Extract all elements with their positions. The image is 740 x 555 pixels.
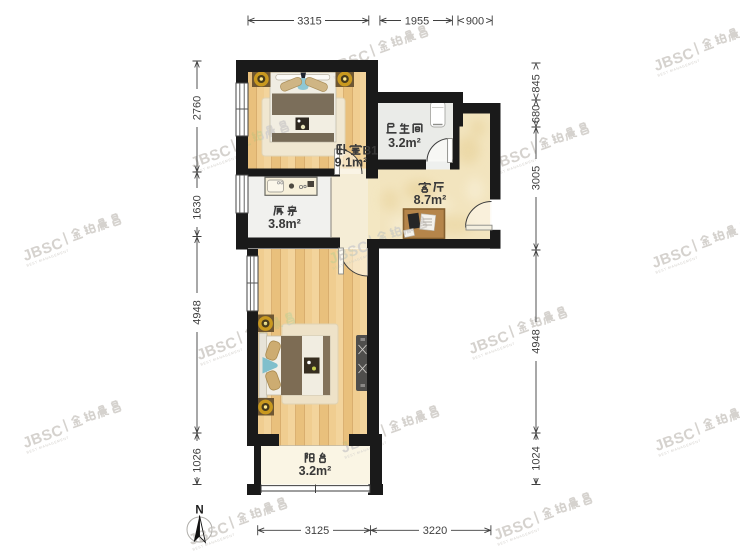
svg-text:3005: 3005 bbox=[531, 166, 543, 190]
svg-text:3220: 3220 bbox=[423, 525, 447, 537]
svg-text:3.8m²: 3.8m² bbox=[268, 217, 301, 231]
svg-text:2760: 2760 bbox=[192, 96, 204, 120]
svg-text:4948: 4948 bbox=[531, 329, 543, 353]
svg-text:845: 845 bbox=[531, 74, 543, 92]
svg-text:1024: 1024 bbox=[531, 446, 543, 470]
svg-text:1955: 1955 bbox=[405, 15, 429, 27]
svg-text:4948: 4948 bbox=[192, 300, 204, 324]
svg-text:1026: 1026 bbox=[192, 448, 204, 472]
svg-text:N: N bbox=[195, 505, 203, 517]
svg-text:900: 900 bbox=[466, 15, 484, 27]
svg-text:3.2m²: 3.2m² bbox=[388, 136, 421, 150]
svg-text:3.2m²: 3.2m² bbox=[299, 464, 332, 478]
svg-text:3125: 3125 bbox=[305, 525, 329, 537]
svg-text:1630: 1630 bbox=[192, 195, 204, 219]
svg-text:8.7m²: 8.7m² bbox=[414, 193, 447, 207]
svg-text:9.1m²: 9.1m² bbox=[335, 156, 368, 170]
svg-text:680: 680 bbox=[531, 105, 543, 123]
svg-text:3315: 3315 bbox=[297, 15, 321, 27]
